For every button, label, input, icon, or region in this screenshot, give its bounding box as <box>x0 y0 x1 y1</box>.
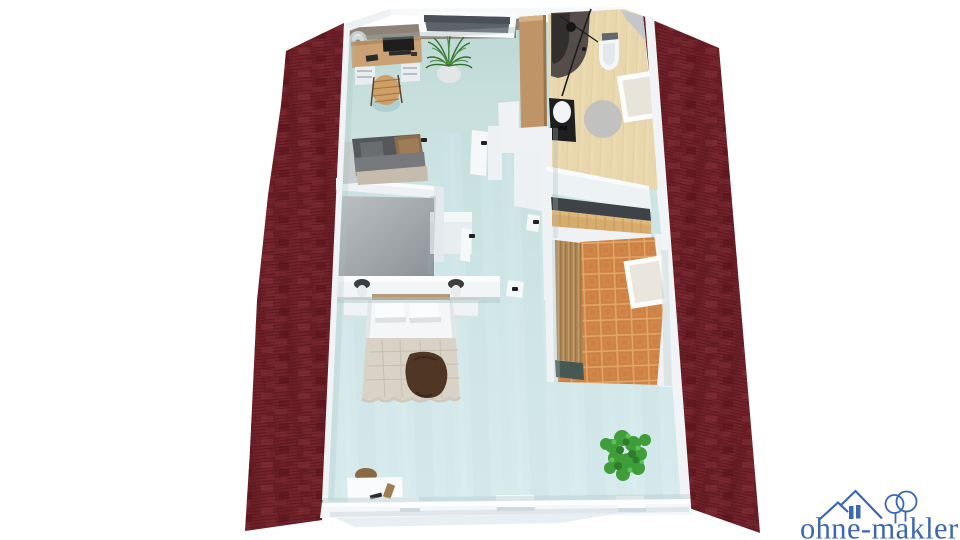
svg-text:ohne-makler: ohne-makler <box>800 512 959 540</box>
